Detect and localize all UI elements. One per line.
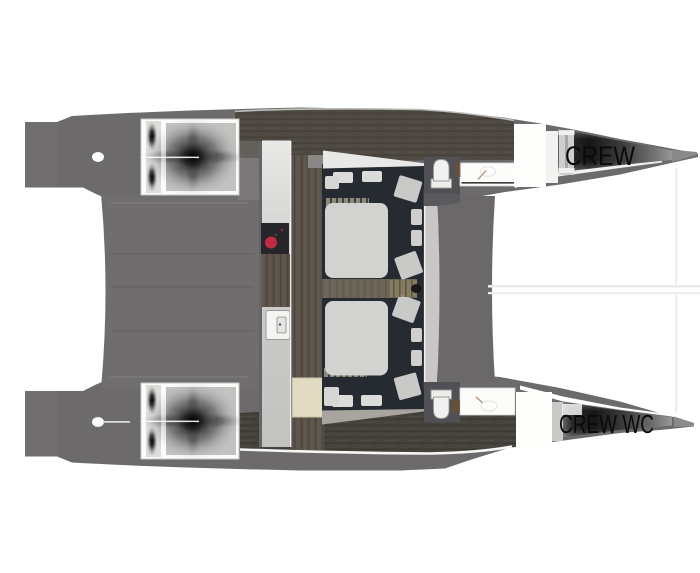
svg-text:CREW: CREW — [565, 141, 635, 171]
svg-text:CREW WC: CREW WC — [559, 411, 654, 439]
